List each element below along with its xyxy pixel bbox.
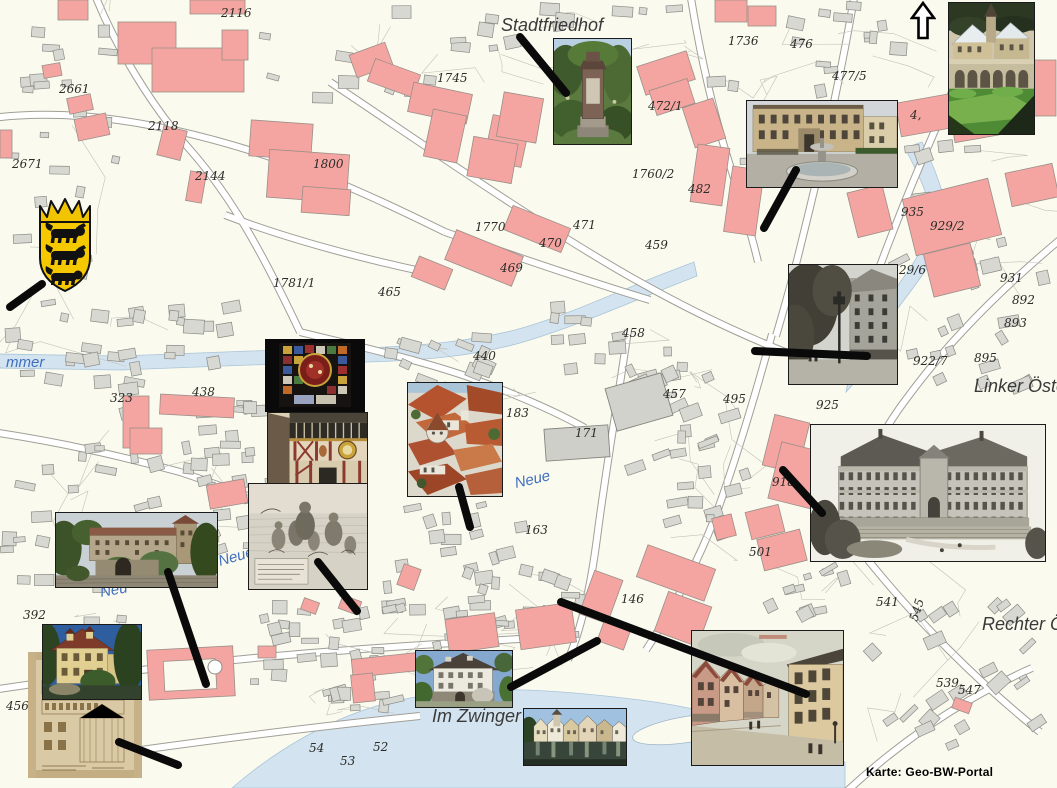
castle-image [56,513,217,587]
parcel-number-label: 477/5 [831,69,867,83]
postcard-street-photo [691,630,844,766]
map-circle-marker [208,660,222,674]
map-attribution: Karte: Geo-BW-Portal [866,765,993,779]
parcel-number-label: 4, [909,108,921,122]
parcel-number-label: 501 [749,545,772,559]
parcel-number-label: 146 [621,592,644,606]
parcel-number-label: 1736 [728,34,759,48]
stained-glass-window-photo [265,339,365,412]
parcel-number-label: 1800 [313,157,344,171]
town-hall-facade-photo [267,412,368,490]
historic-engraving-photo [248,483,368,590]
parcel-number-label: 1770 [475,220,506,234]
parcel-number-label: 476 [789,37,813,51]
parcel-number-label: 163 [525,523,548,537]
yellow-manor-image [43,625,141,699]
parcel-number-label: 895 [974,351,997,365]
parcel-number-label: 458 [621,326,645,340]
parcel-number-label: 54 [309,741,324,755]
parcel-number-label: 893 [1004,316,1027,330]
parcel-number-label: 1760/2 [632,167,674,181]
north-arrow-icon [910,1,936,41]
postcard-street-image [692,631,843,765]
place-label: Im Zwinger [432,706,522,726]
stained-glass-window-image [265,339,365,412]
parcel-number-label: 465 [377,285,401,299]
town-hall-facade-image [268,413,367,489]
parcel-number-label: 1745 [437,71,468,85]
parcel-number-label: 29/6 [898,263,926,277]
parcel-number-label: 457 [662,387,686,401]
river-label: Neue [513,467,552,492]
parcel-number-label: 541 [876,595,899,609]
old-town-rooftops-image [408,383,502,496]
parcel-number-label: 469 [499,261,523,275]
parcel-number-label: 2116 [220,6,252,20]
university-building-engraving-photo [810,424,1046,562]
place-label: Stadtfriedhof [501,15,605,35]
parcel-number-label: 2144 [194,169,226,183]
parcel-number-label: 2118 [147,119,179,133]
historic-street-bw-image [789,265,897,384]
parcel-number-label: 922/7 [913,354,948,368]
parcel-number-label: 495 [722,392,746,406]
historic-street-bw-photo [788,264,898,385]
old-town-rooftops-photo [407,382,503,497]
parcel-number-label: 547 [958,683,981,697]
parcel-number-label: 931 [1000,271,1023,285]
parcel-number-label: 472/1 [647,99,683,113]
parcel-number-label: 471 [572,218,596,232]
parcel-number-label: 438 [191,385,215,399]
coat-of-arms-lions [46,222,86,285]
historic-engraving-image [249,484,367,589]
neckarfront-photo [523,708,627,766]
parcel-number-label: 183 [506,406,529,420]
castle-photo [55,512,218,588]
parcel-number-label: 53 [340,754,356,768]
parcel-number-label: 323 [110,391,133,405]
fountain-courtyard-photo [746,100,898,188]
parcel-number-label: 2661 [58,82,90,96]
river-label: mmer [6,354,45,371]
monastery-winter-image [949,3,1034,134]
parcel-number-label: 2671 [11,157,43,171]
fountain-courtyard-image [747,101,897,187]
parcel-number-label: 929/2 [930,219,965,233]
parcel-number-label: 892 [1012,293,1035,307]
parcel-number-label: 52 [373,740,388,754]
parcel-number-label: 935 [901,205,924,219]
parcel-number-label: 171 [575,426,598,440]
parcel-number-label: 440 [472,349,496,363]
base-map: StadtfriedhofIm ZwingerLinker ÖsterRecht… [0,0,1057,788]
parcel-number-label: 925 [816,398,839,412]
stadtfriedhof-monument-image [554,39,631,144]
parcel-number-label: 392 [23,608,46,622]
stadtfriedhof-monument-photo [553,38,632,145]
university-building-engraving-image [811,425,1045,561]
parcel-number-label: 1781/1 [273,276,315,290]
parcel-number-label: 482 [687,182,711,196]
parcel-number-label: 459 [644,238,668,252]
zwinger-house-photo [415,650,513,708]
neckarfront-image [524,709,626,765]
yellow-manor-photo [42,624,142,700]
parcel-number-label: 470 [538,236,562,250]
zwinger-house-image [416,651,512,707]
place-label: Linker Öster [974,376,1057,396]
map-collage: StadtfriedhofIm ZwingerLinker ÖsterRecht… [0,0,1057,788]
baden-wuerttemberg-coat-of-arms [34,198,96,298]
parcel-number-label: 918 [772,475,795,489]
monastery-winter-photo [948,2,1035,135]
place-label: Rechter Ös [982,614,1057,634]
parcel-number-label: 539 [936,676,959,690]
